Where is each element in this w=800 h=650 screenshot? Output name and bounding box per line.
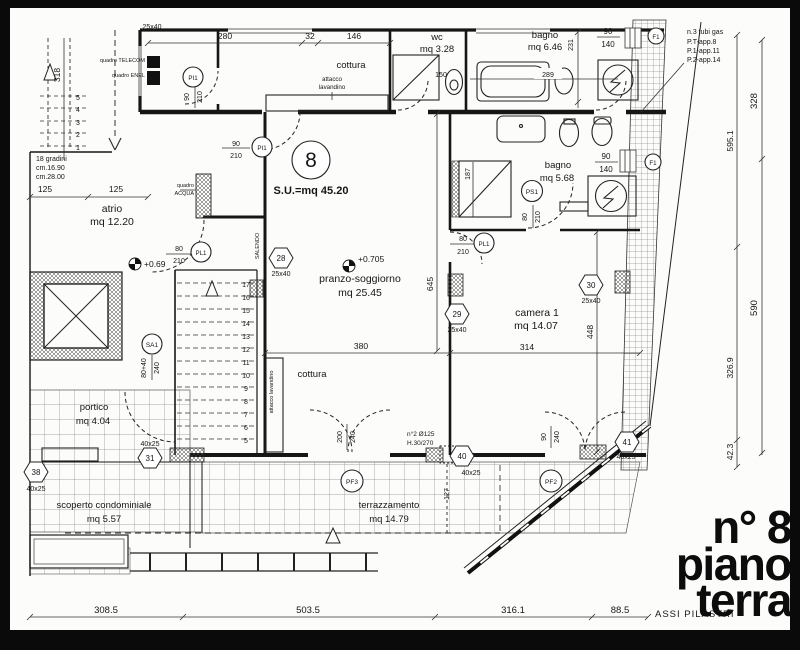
window-bagno-top [625,28,641,48]
dim-shower: 187 [465,168,472,180]
stair-num: 8 [244,399,248,406]
dim-wc-inner: 150 [435,72,447,79]
dim-top-0: 280 [218,31,232,41]
dim-win-top-w: 90 [604,27,613,36]
room-area-terrazzamento: mq 14.79 [369,514,409,525]
dim-camera-h: 448 [585,325,595,339]
pillar-40-id: 40 [458,452,467,461]
tag-pl1-b: PL1 [478,241,490,248]
dim-win-mid-w: 90 [602,152,611,161]
label-cottura-mid: cottura [297,369,327,380]
dim-soggiorno-h: 645 [425,277,435,291]
dim-bottom-0: 308.5 [94,605,118,616]
room-label-camera: camera 1 [515,307,559,319]
dim-ps1-h: 210 [535,211,542,223]
tag-pf2: PF2 [545,479,557,486]
note-gas-0: n.3 tubi gas [687,29,724,36]
tag-f1-a: F1 [652,34,660,41]
pillar-41-id: 41 [623,438,632,447]
room-label-wc: wc [430,32,443,43]
dim-pl1-a-w: 80 [175,246,183,253]
level-soggiorno: +0.705 [358,254,385,264]
dim-win-mid-h: 140 [599,165,613,174]
room-label-scoperto: scoperto condominiale [56,500,151,511]
pillar-29-size: 25x40 [447,327,466,334]
dim-stair-w2: 125 [109,184,123,194]
note-quadro-acqua-2: ACQUA [174,191,194,197]
dim-pl1-a-h: 210 [173,258,185,265]
dim-pl1-b-h: 210 [457,249,469,256]
stair-num-small: 5 [76,95,80,102]
dim-bottom-3: 88.5 [611,605,630,616]
pillar-29-id: 29 [453,310,462,319]
pillar-corner-size: 25x40 [142,24,161,31]
stair-salendo: SALENDO [255,232,261,259]
dim-sa1-w: 80+40 [141,358,148,378]
dim-right-outer-1: 590 [749,300,760,316]
stair-num: 14 [242,321,250,328]
dim-right-inner-0: 595.1 [725,130,735,152]
level-atrio: +0.69 [144,259,166,269]
dim-camera-w: 314 [520,342,534,352]
room-area-camera: mq 14.07 [514,320,558,332]
tag-pi1-b: PI1 [257,145,267,152]
dim-french-w: 200 [337,431,344,443]
dim-right-outer-0: 328 [749,93,760,109]
pillar-31-id: 31 [146,454,155,463]
stair-num: 13 [242,334,250,341]
note-quadro-enel: quadro ENEL [112,73,145,79]
dim-win-top-h: 140 [601,40,615,49]
planter [30,535,128,568]
note-quadro-acqua-1: quadro [177,183,194,189]
pillar-28-size: 25x40 [271,271,290,278]
unit-surface: S.U.=mq 45.20 [274,185,349,197]
stair-note-1: 18 gradini [36,156,67,163]
dim-right-inner-2: 42.3 [725,443,735,460]
stair-num: 12 [242,347,250,354]
room-area-wc: mq 3.28 [420,44,454,55]
level-terrazza: 127 [444,488,451,500]
tag-sa1: SA1 [146,342,159,349]
label-attacco: attacco [322,76,343,83]
pillar-41-size: 40x25 [616,454,635,461]
room-label-bagno-top: bagno [532,30,558,41]
tag-ps1: PS1 [526,189,539,196]
unit-number: 8 [305,149,317,172]
floor-plan-svg: atrio mq 12.20 wc mq 3.28 bagno mq 6.46 … [0,0,800,650]
dim-top-2: 146 [347,31,361,41]
dim-soggiorno-w: 380 [354,341,368,351]
room-area-portico: mq 4.04 [76,416,110,427]
elevator [30,272,122,360]
note-quadro-telecom: quadro TELECOM [100,58,146,64]
title-line-3: terra [696,574,793,626]
note-vent-0: n°2 Ø125 [407,430,435,438]
tag-pf3: PF3 [346,479,358,486]
room-label-portico: portico [80,402,109,413]
stair-num: 7 [244,412,248,419]
pillar-31-size: 40x25 [140,441,159,448]
dim-pi1-a-w: 90 [184,93,191,101]
pillar-30-size: 25x40 [581,298,600,305]
pillar-28-id: 28 [277,254,286,263]
stair-num: 10 [242,373,250,380]
dim-bagno-depth: 231 [568,39,575,51]
dim-top-1: 32 [305,31,315,41]
enel-panel [147,71,160,85]
stair-num: 9 [244,386,248,393]
dim-bagno-inner: 289 [542,72,554,79]
room-label-terrazzamento: terrazzamento [359,500,420,511]
dim-stair-h: 318 [52,68,62,82]
dim-pi1-a-h: 210 [197,91,204,103]
dim-pi1-b-h: 210 [230,153,242,160]
stair-num: 11 [242,360,249,367]
dim-camera-door-h: 240 [554,431,561,443]
dim-bottom-2: 316.1 [501,605,525,616]
dim-bottom-1: 503.5 [296,605,320,616]
dim-french-h: 240 [350,431,357,443]
stair-note-2: cm.16.90 [36,165,65,172]
label-cottura-top: cottura [336,60,366,71]
note-gas-2: P.1-app.11 [687,48,720,55]
room-label-atrio: atrio [102,203,123,215]
dim-pi1-b-w: 90 [232,141,240,148]
pillar-40-size: 40x25 [461,470,480,477]
note-gas-3: P.2-app.14 [687,57,720,64]
dim-sa1-h: 240 [154,362,161,374]
stair-num: 15 [242,308,250,315]
dim-pl1-b-w: 80 [459,236,467,243]
stair-note-3: cm.28.00 [36,174,65,181]
tag-f1-b: F1 [649,160,657,167]
room-area-pranzo: mq 25.45 [338,287,382,299]
room-area-bagno-top: mq 6.46 [528,42,562,53]
dim-ps1-w: 80 [522,213,529,221]
window-bagno-mid [620,150,636,172]
stair-num: 5 [244,438,248,445]
telecom-panel [147,56,160,68]
stair-num-small: 3 [76,120,80,127]
dim-stair-w1: 125 [38,184,52,194]
note-gas-1: P.T-app.8 [687,39,717,46]
pillar-30-id: 30 [587,281,596,290]
tag-pi1-a: PI1 [188,75,198,82]
stair-num: 17 [242,282,250,289]
room-label-pranzo: pranzo-soggiorno [319,273,401,285]
stair-num: 6 [244,425,248,432]
room-label-bagno-mid: bagno [545,160,571,171]
stair-num-small: 1 [76,145,80,152]
room-area-bagno-mid: mq 5.68 [540,173,574,184]
dim-right-inner-1: 326.9 [725,357,735,379]
room-area-atrio: mq 12.20 [90,216,134,228]
acqua-panel [196,174,211,218]
stair-num: 16 [242,295,250,302]
pillar-38-size: 40x25 [26,486,45,493]
room-area-scoperto: mq 5.57 [87,514,121,525]
label-lavandino: lavandino [319,84,346,91]
dim-camera-door-w: 90 [541,433,548,441]
stair-num-small: 2 [76,132,80,139]
tag-pl1-a: PL1 [195,250,207,257]
floor-plan-page: atrio mq 12.20 wc mq 3.28 bagno mq 6.46 … [0,0,800,650]
label-attacco-lavandino: attacco lavandino [269,371,275,414]
note-vent-1: H.30/270 [407,440,434,447]
stair-num-small: 4 [76,107,80,114]
pillar-38-id: 38 [32,468,41,477]
